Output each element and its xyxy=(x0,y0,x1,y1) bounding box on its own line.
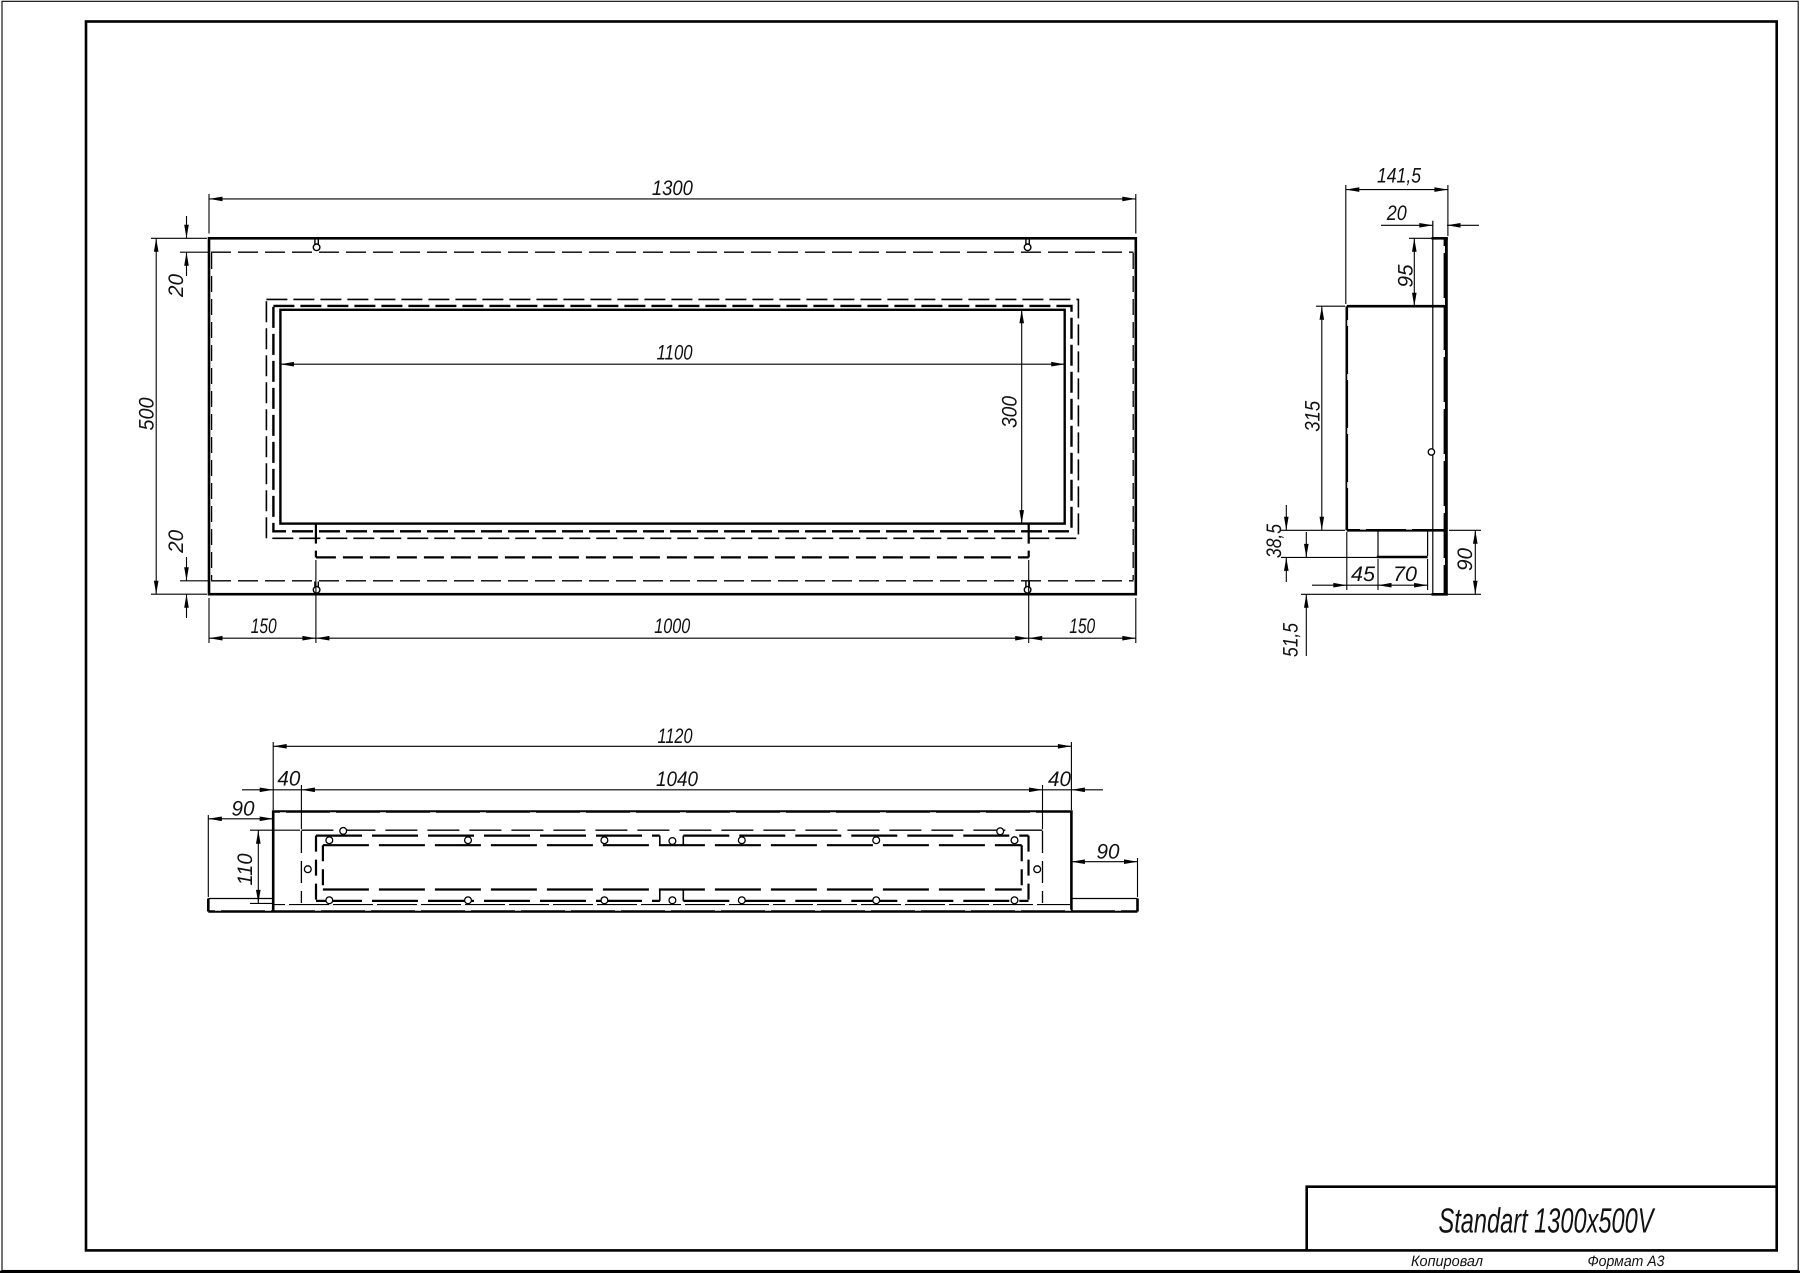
svg-text:1300: 1300 xyxy=(652,177,693,200)
svg-text:110: 110 xyxy=(234,853,257,885)
svg-text:90: 90 xyxy=(1097,840,1120,863)
svg-text:20: 20 xyxy=(165,274,188,298)
svg-text:90: 90 xyxy=(1454,548,1477,571)
svg-text:150: 150 xyxy=(1069,615,1095,638)
svg-text:38,5: 38,5 xyxy=(1263,524,1286,558)
svg-text:1040: 1040 xyxy=(656,768,698,791)
svg-text:1000: 1000 xyxy=(654,615,690,638)
svg-text:500: 500 xyxy=(136,397,159,430)
svg-text:1100: 1100 xyxy=(657,342,693,365)
svg-text:Формат А3: Формат А3 xyxy=(1588,1253,1666,1270)
svg-text:90: 90 xyxy=(232,798,255,821)
svg-text:20: 20 xyxy=(165,530,188,554)
svg-text:1120: 1120 xyxy=(658,725,693,748)
svg-text:95: 95 xyxy=(1395,264,1418,287)
svg-text:Копировал: Копировал xyxy=(1411,1253,1484,1270)
svg-text:40: 40 xyxy=(277,768,300,791)
svg-text:300: 300 xyxy=(999,396,1022,428)
svg-text:141,5: 141,5 xyxy=(1377,165,1421,188)
svg-text:315: 315 xyxy=(1302,401,1325,432)
svg-text:150: 150 xyxy=(251,615,277,638)
svg-text:20: 20 xyxy=(1386,202,1407,225)
svg-text:70: 70 xyxy=(1393,563,1417,586)
svg-text:40: 40 xyxy=(1048,768,1071,791)
svg-text:51,5: 51,5 xyxy=(1280,623,1303,657)
svg-text:Standart 1300x500V: Standart 1300x500V xyxy=(1439,1202,1656,1241)
svg-text:45: 45 xyxy=(1351,563,1375,586)
